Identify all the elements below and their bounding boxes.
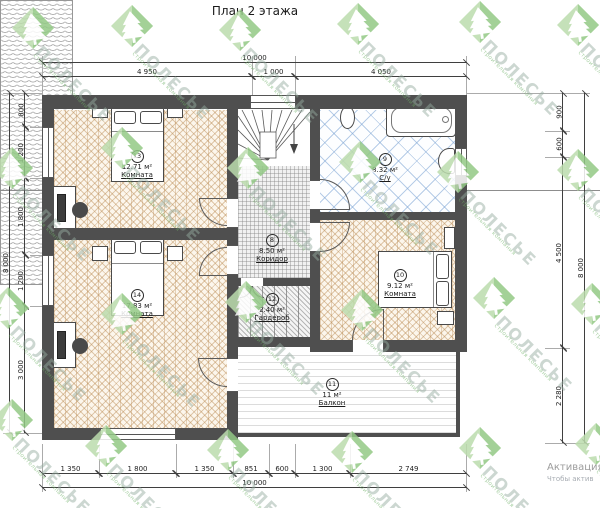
radiator: [444, 227, 455, 249]
monitor: [57, 194, 66, 222]
dim-segment: 1 000: [252, 76, 295, 77]
window: [42, 255, 54, 306]
pillow: [114, 241, 136, 254]
dim-segment: 1 350: [42, 473, 99, 474]
watermark-tile: ПОЛЕСЬЕстроительная компания: [336, 2, 380, 46]
stairs: [238, 110, 310, 166]
nightstand: [437, 311, 454, 325]
activation-line2: Чтобы актив: [547, 475, 600, 483]
room-area: 8.50 м²: [240, 247, 304, 255]
dim-segment: 3 000: [24, 306, 25, 433]
tree-logo-icon: [472, 276, 516, 320]
watermark-brand: ПОЛЕСЬЕ: [493, 312, 577, 396]
tree-logo-icon: [570, 282, 600, 326]
pillow: [140, 241, 162, 254]
tree-logo-icon: [458, 426, 502, 470]
extension-line: [30, 306, 42, 307]
bathtub-drain: [442, 116, 449, 123]
room-name: Коридор: [240, 255, 304, 263]
door-opening: [227, 245, 238, 275]
wall-segment: [310, 109, 320, 180]
dim-left-total: 8 000: [9, 93, 10, 433]
chair: [72, 202, 88, 218]
door-opening: [310, 180, 320, 210]
watermark-tagline: строительная компания: [479, 47, 539, 107]
room-number: 14: [131, 289, 144, 302]
wall-segment: [227, 109, 238, 198]
blanket-line: [112, 263, 163, 264]
dim-segment: 4 950: [42, 76, 252, 77]
extension-line: [3, 433, 42, 434]
room-number: 11: [326, 378, 339, 391]
tree-logo-icon: [110, 4, 154, 48]
room-label-8: 8 8.50 м² Коридор: [240, 228, 304, 263]
pillow: [436, 254, 449, 279]
room-label-14: 14 17.83 м² Комната: [105, 283, 169, 318]
wall-segment: [54, 228, 227, 240]
door-opening: [310, 222, 320, 252]
room-name: Комната: [105, 310, 169, 318]
wall-segment: [310, 210, 320, 222]
blanket-line: [112, 131, 163, 132]
tree-logo-icon: [336, 2, 380, 46]
wall-segment: [227, 228, 238, 245]
room-area: 2.40 м²: [240, 306, 304, 314]
watermark-brand: ПОЛЕСЬЕ: [479, 36, 563, 120]
door-leaf: [199, 275, 227, 276]
dim-segment: 4 050: [295, 76, 467, 77]
dim-segment: 2 749: [350, 473, 467, 474]
dim-segment: 1 200: [24, 255, 25, 306]
dim-segment: 600: [562, 131, 563, 157]
room-name: Комната: [368, 290, 432, 298]
room-number: 9: [379, 153, 392, 166]
room-number: 8: [266, 234, 279, 247]
dim-segment: 4 500: [562, 157, 563, 348]
wall-segment: [310, 340, 467, 352]
dim-segment: 1 800: [99, 473, 176, 474]
activation-line1: Активация: [547, 462, 600, 473]
window: [42, 127, 54, 178]
watermark-brand: ПОЛЕСЬЕ: [577, 39, 600, 123]
dim-segment: 1 350: [176, 473, 233, 474]
balcony-rail: [456, 352, 460, 437]
blanket-line: [433, 252, 434, 307]
pillow: [114, 111, 136, 124]
room-number: 10: [394, 269, 407, 282]
room-area: 8.32 м²: [353, 166, 417, 174]
pillow: [436, 281, 449, 306]
page-title: План 2 этажа: [180, 4, 330, 18]
room-name: Комната: [105, 171, 169, 179]
room-name: Гардероб: [240, 314, 304, 322]
wall-segment: [264, 278, 310, 286]
watermark-tagline: строительная компания: [591, 329, 600, 389]
dim-segment: 600: [269, 473, 295, 474]
balcony-rail: [231, 433, 460, 437]
dim-segment: 800: [24, 93, 25, 127]
door-opening: [227, 358, 238, 392]
watermark-tile: ПОЛЕСЬЕстроительная компания: [458, 0, 502, 44]
watermark-tagline: строительная компания: [479, 473, 539, 508]
door-opening: [240, 278, 264, 286]
extension-line: [545, 443, 590, 444]
room-area: 11 м²: [300, 391, 364, 399]
dim-segment: 900: [562, 93, 563, 131]
watermark-tagline: строительная компания: [577, 195, 600, 255]
pillow: [140, 111, 162, 124]
watermark-tile: ПОЛЕСЬЕстроительная компания: [570, 282, 600, 326]
room-area: 9.12 м²: [368, 282, 432, 290]
room-number: 13: [131, 150, 144, 163]
sink: [438, 148, 455, 174]
watermark-tile: ПОЛЕСЬЕстроительная компания: [472, 276, 516, 320]
floor-plan-canvas: План 2 этажа: [0, 0, 600, 508]
door-opening: [352, 340, 384, 352]
room-label-11: 11 11 м² Балкон: [300, 372, 364, 407]
door-leaf: [383, 309, 384, 340]
dim-segment: 851: [233, 473, 269, 474]
extension-line: [30, 178, 42, 179]
watermark-brand: ПОЛЕСЬЕ: [591, 318, 600, 402]
room-label-9: 9 8.32 м² С/у: [353, 147, 417, 182]
door-opening: [227, 198, 238, 228]
windows-activation-watermark: Активация Чтобы актив: [547, 462, 600, 483]
extension-line: [30, 255, 42, 256]
room-name: Балкон: [300, 399, 364, 407]
tree-logo-icon: [458, 0, 502, 44]
room-name: С/у: [353, 174, 417, 182]
room-label-10: 10 9.12 м² Комната: [368, 263, 432, 298]
room-number: 12: [266, 293, 279, 306]
room-area: 17.83 м²: [105, 302, 169, 310]
dim-segment: 2 280: [562, 348, 563, 443]
dim-segment: 1 200: [24, 127, 25, 178]
tree-logo-icon: [556, 3, 600, 47]
door-leaf: [320, 209, 350, 210]
nightstand: [92, 246, 108, 261]
watermark-tile: ПОЛЕСЬЕстроительная компания: [556, 3, 600, 47]
watermark-tile: ПОЛЕСЬЕстроительная компания: [458, 426, 502, 470]
watermark-tagline: строительная компания: [493, 323, 553, 383]
window: [455, 148, 467, 176]
chair: [72, 338, 88, 354]
watermark-brand: ПОЛЕСЬЕ: [577, 184, 600, 268]
dim-top-total: 10 000: [42, 62, 467, 63]
wall-segment: [320, 212, 455, 220]
room-area: 12.71 м²: [105, 163, 169, 171]
extension-line: [467, 93, 590, 94]
dim-right-total: 8 000: [584, 93, 585, 443]
dim-segment: 1 800: [24, 178, 25, 255]
wall-segment: [310, 252, 320, 347]
watermark-brand: ПОЛЕСЬЕ: [457, 186, 541, 270]
wall-segment: [455, 95, 467, 352]
window: [250, 95, 296, 109]
extension-line: [30, 127, 42, 128]
toilet-bowl: [340, 106, 355, 129]
room-label-12: 12 2.40 м² Гардероб: [240, 287, 304, 322]
nightstand: [167, 246, 183, 261]
watermark-tagline: строительная компания: [11, 445, 71, 505]
watermark-tile: ПОЛЕСЬЕстроительная компания: [110, 4, 154, 48]
dim-bottom-total: 10 000: [42, 487, 467, 488]
watermark-tagline: строительная компания: [577, 50, 600, 110]
room-label-13: 13 12.71 м² Комната: [105, 144, 169, 179]
window: [100, 428, 176, 440]
dim-segment: 1 300: [295, 473, 350, 474]
wall-segment: [227, 337, 310, 347]
watermark-tagline: строительная компания: [105, 471, 165, 508]
monitor: [57, 331, 66, 359]
